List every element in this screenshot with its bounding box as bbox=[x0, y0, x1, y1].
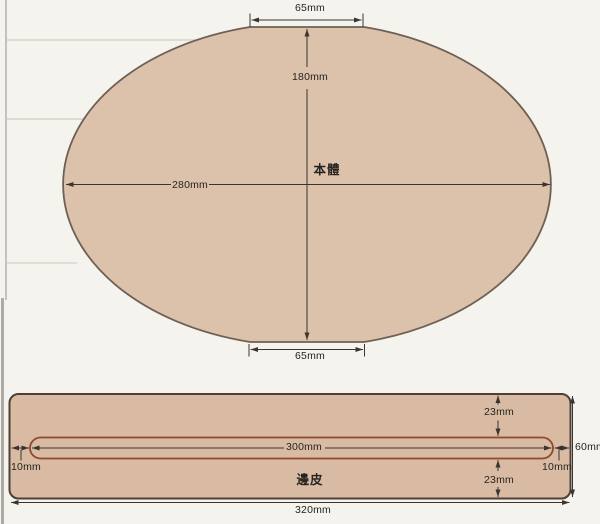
dim-label-width: 280mm bbox=[163, 179, 217, 191]
dim-label-left-offset: 10mm bbox=[1, 461, 51, 473]
dim-label-slot-length: 300mm bbox=[277, 441, 331, 453]
edge-strip-name-label: 邊皮 bbox=[286, 474, 334, 486]
dim-label-right-offset: 10mm bbox=[532, 461, 582, 473]
dim-label-bottom-width: 65mm bbox=[283, 350, 337, 362]
dim-label-strip-width: 320mm bbox=[286, 504, 340, 516]
pattern-diagram: 65mm 180mm 280mm 本體 65mm 300mm 10mm 10mm… bbox=[0, 0, 600, 524]
dim-label-strip-height: 60mm bbox=[575, 441, 600, 453]
dim-label-top-width: 65mm bbox=[283, 2, 337, 14]
main-body-name-label: 本體 bbox=[303, 164, 351, 176]
dim-label-height: 180mm bbox=[283, 71, 337, 83]
dim-label-top-offset: 23mm bbox=[473, 406, 525, 418]
dim-label-bottom-offset: 23mm bbox=[473, 474, 525, 486]
